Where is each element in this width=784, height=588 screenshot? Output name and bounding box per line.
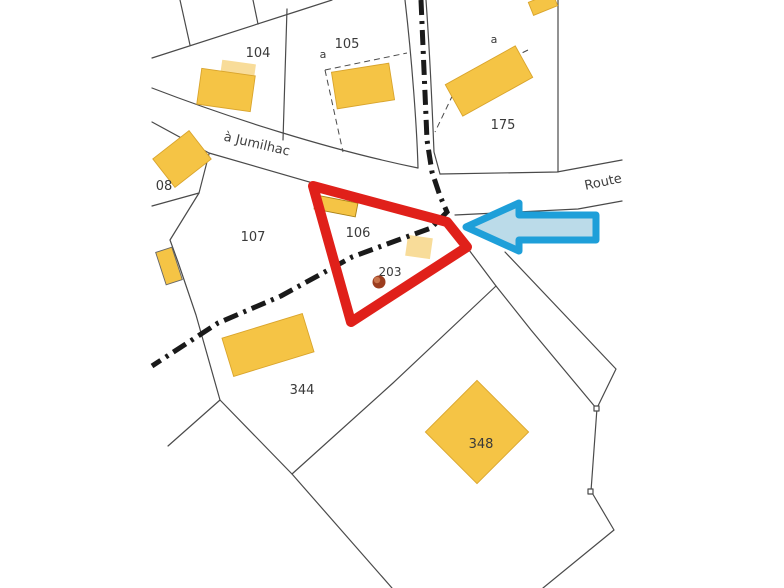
boundary-348-northeast xyxy=(496,286,596,408)
label-parcel-104: 104 xyxy=(246,46,271,61)
marker-dot-highlight xyxy=(374,277,380,283)
boundary-104-105 xyxy=(283,9,287,140)
building-topright xyxy=(528,0,557,15)
building-105 xyxy=(331,63,394,109)
boundary-topleft-diagonal xyxy=(152,0,332,58)
survey-marker-2 xyxy=(588,489,593,494)
building-sliver-107 xyxy=(156,247,183,285)
boundary-junction-link xyxy=(469,250,496,286)
centerline-path xyxy=(152,0,447,366)
label-sub-a-175: a xyxy=(491,33,498,46)
label-parcel-175: 175 xyxy=(491,118,516,133)
road-vertical-left-edge xyxy=(405,0,418,168)
label-parcel-108: 08 xyxy=(156,179,173,194)
boundary-344-south xyxy=(220,400,392,588)
building-104 xyxy=(197,68,255,111)
point-marker-203 xyxy=(373,276,386,289)
survey-marker-1 xyxy=(594,406,599,411)
label-sub-a-105: a xyxy=(320,48,327,61)
building-175 xyxy=(445,46,532,116)
label-road-route: Route xyxy=(583,171,623,194)
building-344 xyxy=(222,314,314,377)
road-route-top-edge xyxy=(440,160,622,174)
label-parcel-106: 106 xyxy=(346,226,371,241)
road-vertical-right-edge xyxy=(426,0,440,174)
label-parcel-107: 107 xyxy=(241,230,266,245)
boundary-topleft-1 xyxy=(180,0,190,45)
cadastral-map: 104 105 a a 175 08 107 106 203 344 348 à… xyxy=(0,0,784,588)
annotation-arrow-left xyxy=(466,203,596,251)
building-348 xyxy=(425,380,528,483)
boundary-344-southwest xyxy=(168,400,220,446)
label-parcel-344: 344 xyxy=(290,383,315,398)
road-centerline xyxy=(152,0,447,366)
boundary-107-west xyxy=(170,193,220,400)
boundary-topleft-2 xyxy=(253,0,258,24)
label-parcel-105: 105 xyxy=(335,37,360,52)
label-parcel-348: 348 xyxy=(469,437,494,452)
label-road-jumilhac: à Jumilhac xyxy=(222,130,291,160)
boundary-right-southeast xyxy=(505,252,616,588)
map-canvas: 104 105 a a 175 08 107 106 203 344 348 à… xyxy=(0,0,784,588)
